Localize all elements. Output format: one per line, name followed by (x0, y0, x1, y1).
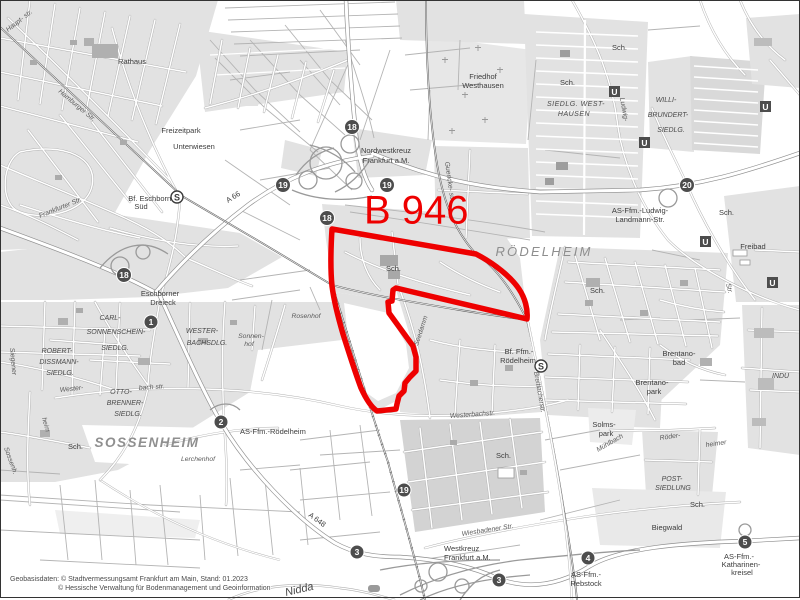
svg-text:kreisel: kreisel (731, 568, 753, 577)
svg-text:BRUNDERT-: BRUNDERT- (648, 112, 689, 119)
svg-text:Eschborner: Eschborner (141, 289, 180, 298)
svg-text:19: 19 (278, 180, 288, 190)
svg-text:© Hessische Verwaltung für Bod: © Hessische Verwaltung für Bodenmanageme… (58, 584, 271, 592)
svg-text:3: 3 (497, 575, 502, 585)
svg-text:Nordwestkreuz: Nordwestkreuz (361, 146, 411, 155)
svg-text:Dreieck: Dreieck (150, 298, 176, 307)
svg-text:SIEDLG.: SIEDLG. (114, 411, 142, 418)
svg-text:19: 19 (399, 485, 409, 495)
svg-text:WILLI-: WILLI- (656, 97, 677, 104)
svg-text:Friedhof: Friedhof (469, 72, 497, 81)
svg-text:park: park (599, 429, 614, 438)
svg-text:RÖDELHEIM: RÖDELHEIM (495, 244, 592, 259)
svg-text:U: U (769, 278, 775, 288)
svg-text:2: 2 (219, 417, 224, 427)
svg-text:Sch.: Sch. (560, 78, 575, 87)
svg-text:POST-: POST- (662, 476, 683, 483)
svg-text:Sch.: Sch. (590, 286, 605, 295)
svg-text:INDU: INDU (772, 373, 790, 380)
svg-text:5: 5 (743, 537, 748, 547)
svg-text:3: 3 (355, 547, 360, 557)
svg-text:DISSMANN-: DISSMANN- (39, 359, 79, 366)
svg-text:SIEDLUNG: SIEDLUNG (655, 485, 691, 492)
svg-text:SONNENSCHEIN-: SONNENSCHEIN- (87, 329, 146, 336)
svg-text:ROBERT-: ROBERT- (42, 348, 73, 355)
svg-text:hof: hof (244, 341, 255, 348)
svg-text:Sonnen-: Sonnen- (238, 333, 264, 340)
svg-text:Rebstock: Rebstock (570, 579, 602, 588)
svg-text:Geobasisdaten: © Stadtvermessu: Geobasisdaten: © Stadtvermessungsamt Fra… (10, 575, 248, 583)
svg-text:BRENNER-: BRENNER- (107, 400, 144, 407)
svg-text:Sch.: Sch. (68, 442, 83, 451)
svg-text:HAUSEN: HAUSEN (558, 111, 591, 118)
svg-text:Sch.: Sch. (496, 451, 511, 460)
svg-text:Sch.: Sch. (386, 264, 401, 273)
svg-text:Rödelheim: Rödelheim (500, 356, 536, 365)
svg-text:S: S (174, 193, 180, 203)
svg-text:Rosenhof: Rosenhof (291, 313, 321, 320)
svg-text:AS-Ffm.-Rödelheim: AS-Ffm.-Rödelheim (240, 427, 306, 436)
svg-text:Unterwiesen: Unterwiesen (173, 142, 215, 151)
svg-text:Westhausen: Westhausen (462, 81, 504, 90)
svg-text:Landmann-Str.: Landmann-Str. (615, 215, 664, 224)
svg-text:AS-Ffm.-Ludwig-: AS-Ffm.-Ludwig- (612, 206, 669, 215)
svg-text:park: park (647, 387, 662, 396)
svg-text:20: 20 (682, 180, 692, 190)
svg-text:Sch.: Sch. (719, 208, 734, 217)
svg-text:4: 4 (586, 553, 591, 563)
svg-text:CARL-: CARL- (99, 315, 121, 322)
svg-text:1: 1 (149, 317, 154, 327)
svg-text:U: U (702, 237, 708, 247)
svg-text:U: U (762, 102, 768, 112)
svg-text:SOSSENHEIM: SOSSENHEIM (94, 435, 199, 450)
svg-text:Frankfurt a.M.: Frankfurt a.M. (363, 156, 410, 165)
svg-text:Brentano-: Brentano- (663, 349, 696, 358)
svg-text:18: 18 (322, 213, 332, 223)
svg-text:Biegwald: Biegwald (652, 523, 682, 532)
svg-text:S: S (538, 362, 544, 372)
svg-text:18: 18 (119, 270, 129, 280)
svg-text:18: 18 (347, 122, 357, 132)
svg-text:BACHSDLG.: BACHSDLG. (187, 340, 228, 347)
svg-text:Rathaus: Rathaus (118, 57, 146, 66)
svg-text:Brentano-: Brentano- (636, 378, 669, 387)
svg-text:Westkreuz: Westkreuz (444, 544, 480, 553)
svg-text:Sch.: Sch. (612, 43, 627, 52)
svg-text:AS-Ffm.-: AS-Ffm.- (571, 570, 601, 579)
svg-text:Freizeitpark: Freizeitpark (161, 126, 200, 135)
svg-text:Süd: Süd (134, 202, 147, 211)
svg-text:SIEDLG.: SIEDLG. (657, 127, 685, 134)
svg-text:SIEDLG. WEST-: SIEDLG. WEST- (547, 101, 605, 108)
svg-text:U: U (611, 87, 617, 97)
svg-text:SIEDLG.: SIEDLG. (46, 370, 74, 377)
svg-text:Freibad: Freibad (740, 242, 765, 251)
svg-text:Sch.: Sch. (690, 500, 705, 509)
svg-text:SIEDLG.: SIEDLG. (101, 345, 129, 352)
svg-text:WESTER-: WESTER- (186, 328, 219, 335)
svg-text:Bf. Ffm.-: Bf. Ffm.- (505, 347, 534, 356)
svg-text:Lerchenhof: Lerchenhof (181, 456, 216, 463)
svg-text:Frankfurt a.M.: Frankfurt a.M. (444, 553, 491, 562)
svg-text:bad: bad (673, 358, 686, 367)
svg-text:U: U (641, 138, 647, 148)
svg-text:Solms-: Solms- (592, 420, 616, 429)
svg-text:B 946: B 946 (364, 189, 469, 233)
svg-text:OTTO-: OTTO- (110, 389, 132, 396)
